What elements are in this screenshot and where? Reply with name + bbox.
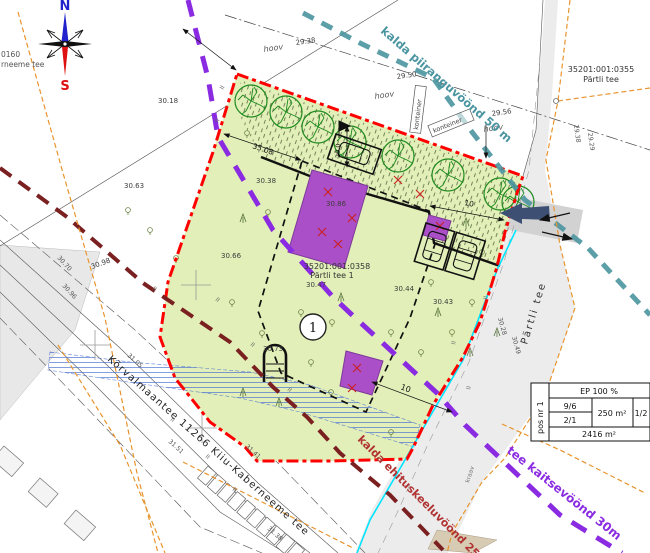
pos-marker-1: 1: [300, 314, 326, 340]
parcel-358-elevation: 30.47: [306, 281, 326, 289]
survey-point: [554, 99, 559, 104]
edge-cut-label-1: 0160: [1, 50, 20, 59]
table-ratio1: 9/6: [564, 402, 577, 411]
table-ratio3: 1/2: [635, 409, 648, 418]
edge-cut-label-2: rneeme tee: [1, 60, 45, 69]
table-header: EP 100 %: [580, 387, 618, 396]
dim-setback-east: 10: [464, 198, 475, 209]
elevation-label: 30.43: [433, 298, 453, 306]
table-plot-area: 2416 m²: [582, 430, 616, 439]
table-build-area: 250 m²: [598, 409, 627, 418]
parcel-358-name: Pärtli tee 1: [310, 271, 353, 280]
elevation-label: 30.63: [124, 182, 144, 190]
dim-depth: 20.0: [334, 144, 342, 158]
table-ratio2: 2/1: [564, 416, 577, 425]
compass-south-label: S: [60, 79, 69, 94]
elevation-label: 30.38: [256, 177, 276, 185]
info-table: EP 100 % pos nr 1 9/6 2/1 250 m² 1/2 241…: [531, 383, 650, 441]
elevation-label: 30.18: [158, 97, 178, 105]
parcel-358-code: 35201:001:0358: [304, 262, 370, 271]
site-plan-map: 35.08 20.0 10 10 konteiner konteiner II …: [0, 0, 650, 553]
site-plan-drawing: 35.08 20.0 10 10 konteiner konteiner II …: [0, 0, 650, 553]
svg-text:1: 1: [309, 321, 317, 336]
table-pos: pos nr 1: [536, 401, 545, 434]
elevation-label: 30.86: [326, 200, 347, 208]
parcel-355-code: 35201:001:0355: [568, 65, 634, 74]
compass-north-label: N: [60, 0, 71, 14]
elevation-label: 30.66: [221, 252, 242, 260]
elevation-label: 30.44: [394, 285, 415, 293]
elevation-label: 30.73: [263, 345, 283, 353]
parcel-355-name: Pärtli tee: [583, 75, 619, 84]
